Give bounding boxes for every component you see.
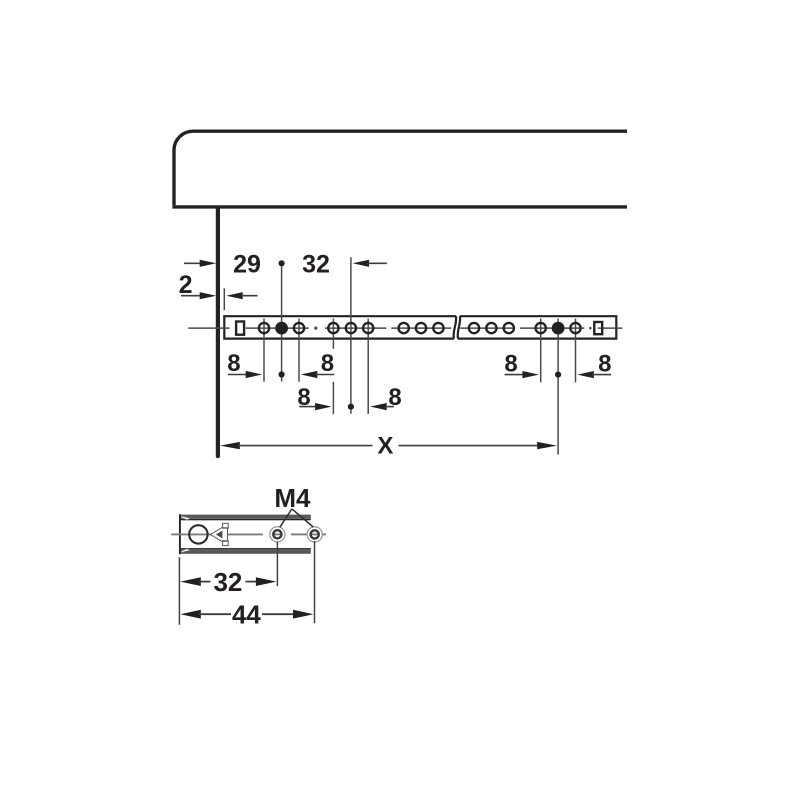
svg-text:8: 8 (227, 350, 240, 377)
svg-text:2: 2 (179, 271, 193, 299)
svg-text:32: 32 (213, 567, 242, 597)
svg-text:44: 44 (232, 599, 261, 629)
svg-text:29: 29 (233, 250, 261, 278)
svg-text:8: 8 (598, 350, 611, 377)
svg-text:8: 8 (388, 384, 401, 411)
svg-text:8: 8 (321, 350, 334, 377)
svg-text:M4: M4 (274, 483, 311, 513)
svg-text:X: X (377, 433, 393, 460)
svg-text:8: 8 (504, 350, 517, 377)
svg-text:32: 32 (302, 250, 330, 278)
